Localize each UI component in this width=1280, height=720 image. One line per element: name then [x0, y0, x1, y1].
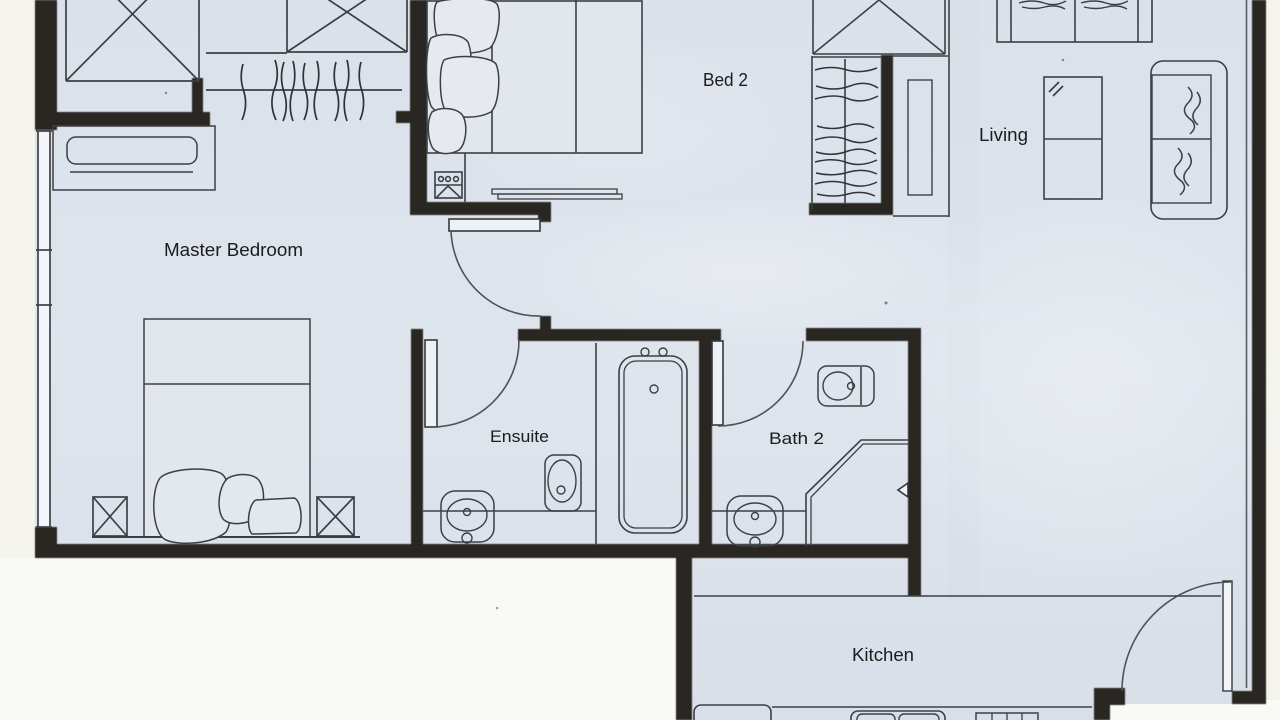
svg-text:Living: Living [979, 125, 1028, 145]
svg-text:Kitchen: Kitchen [852, 645, 914, 665]
svg-text:Bed 2: Bed 2 [703, 70, 748, 90]
svg-text:Master Bedroom: Master Bedroom [164, 240, 303, 260]
svg-text:Bath 2: Bath 2 [769, 429, 824, 448]
svg-text:Ensuite: Ensuite [490, 427, 549, 446]
